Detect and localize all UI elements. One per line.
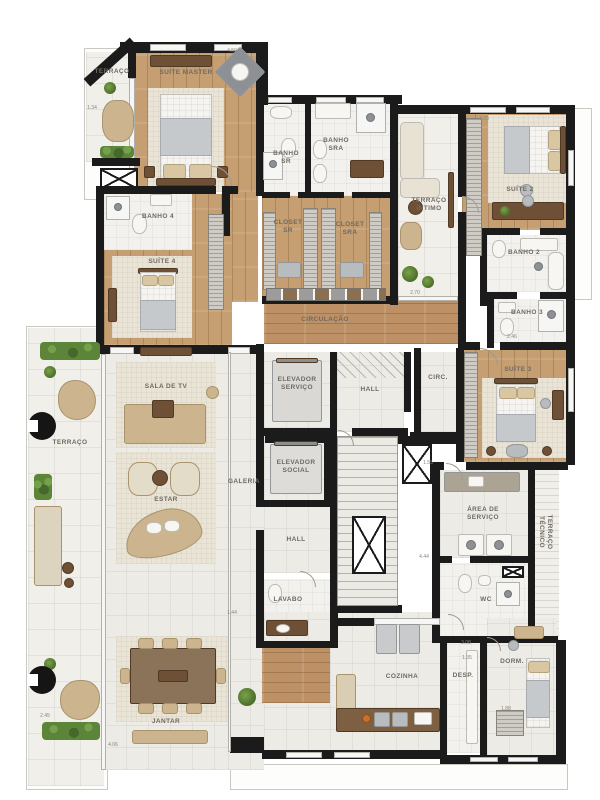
room-label-suite-4: SUÍTE 4 <box>148 258 175 266</box>
dimension-label: 4.44 <box>419 554 429 560</box>
wardrobe <box>369 212 382 290</box>
room-label-terraco-lateral: TERRAÇO <box>53 439 88 447</box>
hedge <box>42 722 100 740</box>
wall <box>324 436 331 506</box>
window <box>228 347 250 354</box>
sideboard <box>132 730 208 744</box>
social-elevator-door <box>274 441 318 446</box>
shower-head <box>534 262 543 271</box>
room-label-suite-2: SUÍTE 2 <box>506 186 533 194</box>
wall <box>230 737 264 753</box>
dimension-label: 4.06 <box>108 742 118 748</box>
wardrobe <box>466 118 482 256</box>
pouf <box>542 446 552 456</box>
wall <box>404 352 411 412</box>
room-label-banho-sr: BANHO SR <box>273 150 299 166</box>
terraco-tecnico-floor <box>535 468 559 643</box>
wall <box>96 186 104 354</box>
wall <box>487 292 494 348</box>
dimension-label: 1.55 <box>423 460 433 466</box>
bidet <box>313 164 327 183</box>
wall <box>414 348 421 436</box>
wall <box>456 348 464 462</box>
dimension-label: 1.88 <box>501 706 511 712</box>
armchair <box>400 222 422 250</box>
room-label-sala-de-tv: SALA DE TV <box>145 383 187 391</box>
bed-pillow <box>528 661 550 673</box>
wall <box>96 186 216 194</box>
shower-head <box>366 113 375 122</box>
chair <box>508 640 519 651</box>
dimension-label: 2.46 <box>507 334 517 340</box>
headboard <box>156 178 216 186</box>
armchair <box>506 444 528 458</box>
room-label-galeria: GALERIA <box>228 478 260 486</box>
wall <box>352 428 408 436</box>
toilet <box>492 240 506 258</box>
dimension-label: 2.45 <box>40 713 50 719</box>
plant-pot <box>402 266 418 282</box>
bench <box>448 172 454 228</box>
plant-pot <box>500 206 510 216</box>
wall <box>440 643 447 758</box>
room-label-suite-master: SUÍTE MASTER <box>159 69 212 77</box>
washer-door <box>466 540 476 550</box>
building-edge-bottom <box>230 764 568 790</box>
headboard <box>560 126 566 174</box>
hedge <box>34 474 52 500</box>
dining-chair <box>162 638 178 649</box>
desk-chair <box>522 195 534 207</box>
wall <box>390 100 398 305</box>
wall <box>330 610 338 648</box>
closet-bench <box>340 262 364 278</box>
room-label-jantar: JANTAR <box>152 718 180 726</box>
cooktop <box>374 712 390 727</box>
dining-chair <box>162 703 178 714</box>
armchair <box>170 462 200 496</box>
room-label-wc: WC <box>480 596 492 604</box>
duct-x <box>502 566 524 578</box>
drawer-row <box>266 288 386 301</box>
wardrobe <box>208 214 224 310</box>
wall <box>432 462 440 560</box>
pouf <box>64 578 74 588</box>
window-glass-wall <box>228 352 231 752</box>
dimension-label: 4.20 <box>479 116 489 122</box>
wall <box>256 100 264 196</box>
wall <box>264 500 330 507</box>
terrace-sofa <box>34 506 62 586</box>
room-label-banho-2: BANHO 2 <box>508 249 540 257</box>
floor-plan: TERRAÇOSUÍTE MASTERBANHO SRBANHO SRACLOS… <box>0 0 600 800</box>
room-label-cozinha: COZINHA <box>386 673 418 681</box>
plant-pot <box>238 688 256 706</box>
plant-pot <box>104 82 116 94</box>
wall <box>256 530 264 579</box>
laundry-sink <box>468 476 484 487</box>
window <box>286 752 322 758</box>
room-label-terraco-master: TERRAÇO <box>95 68 130 76</box>
dimension-label: 1.44 <box>227 610 237 616</box>
toilet <box>458 574 472 593</box>
glass-terraco-intimo <box>398 296 458 301</box>
room-label-elevador-social: ELEVADOR SOCIAL <box>277 459 316 475</box>
refrigerator <box>399 624 420 654</box>
wall <box>330 436 337 610</box>
window <box>470 757 498 762</box>
room-label-terraco-intimo: TERRAÇO ÍNTIMO <box>412 197 447 213</box>
window <box>268 97 292 103</box>
lounge-chair <box>58 380 96 420</box>
sink <box>478 575 491 586</box>
bed-pillow <box>142 275 158 286</box>
shower-head <box>114 203 122 211</box>
wall <box>92 158 140 166</box>
wall <box>458 112 466 197</box>
room-label-terraco-tecnico: TERRAÇO TÉCNICO <box>537 515 553 550</box>
wall <box>466 462 568 470</box>
wall <box>458 212 466 304</box>
shelving <box>466 650 478 744</box>
wall <box>398 436 464 444</box>
wall <box>540 228 566 235</box>
room-label-banho-4: BANHO 4 <box>142 213 174 221</box>
bathtub <box>548 252 564 290</box>
dimension-label: 3.08 <box>461 640 471 646</box>
room-label-banho-sra: BANHO SRA <box>323 137 349 153</box>
kitchen-sink <box>414 712 432 725</box>
double-sink-counter <box>315 103 351 119</box>
wall <box>298 192 344 198</box>
sofa-cushion <box>164 520 180 532</box>
cooktop <box>392 712 408 727</box>
sofa-cushion <box>146 522 162 534</box>
dining-chair <box>186 638 202 649</box>
bed-blanket <box>140 300 176 330</box>
sink <box>270 106 292 119</box>
wall <box>352 192 390 198</box>
wardrobe <box>321 208 336 294</box>
room-label-suite-3: SUÍTE 3 <box>504 366 531 374</box>
room-label-hall-inferior: HALL <box>287 536 306 544</box>
wardrobe <box>464 352 478 458</box>
desk <box>514 626 544 639</box>
wall <box>500 342 566 350</box>
circ-floor <box>421 352 456 432</box>
sink <box>276 624 290 633</box>
hedge <box>100 146 134 158</box>
wall <box>480 643 487 758</box>
dresser <box>150 55 212 67</box>
refrigerator <box>376 624 397 654</box>
desk-chair <box>540 398 551 409</box>
pouf <box>486 446 496 456</box>
bed-blanket <box>504 126 530 174</box>
wall <box>432 563 440 643</box>
louver-closet <box>496 710 524 736</box>
wall-fountain-notch <box>28 420 38 432</box>
tv-console <box>140 347 192 356</box>
bath-bench <box>350 160 384 178</box>
tv-cabinet <box>108 288 117 322</box>
wall <box>334 618 374 626</box>
room-label-circulacao: CIRCULAÇÃO <box>301 316 349 324</box>
room-label-hall-superior: HALL <box>361 386 380 394</box>
door-arc <box>300 571 316 587</box>
wall <box>330 605 402 613</box>
room-label-area-de-servico: ÁREA DE SERVIÇO <box>467 506 499 522</box>
window <box>516 107 550 113</box>
dining-chair <box>186 703 202 714</box>
bed-pillow <box>163 164 186 179</box>
shower-head <box>504 590 512 598</box>
wall <box>540 292 566 299</box>
circulacao-floor <box>264 300 464 344</box>
wall <box>432 556 452 563</box>
closet-bench <box>277 262 301 278</box>
wall <box>440 755 566 764</box>
sofa-chaise <box>400 178 440 198</box>
window <box>150 44 186 51</box>
bed-pillow <box>158 275 174 286</box>
lounge-chair <box>102 100 134 142</box>
dryer-door <box>494 540 504 550</box>
coffee-table-round <box>152 470 168 486</box>
wall <box>330 352 337 430</box>
window <box>568 368 574 412</box>
bed-blanket <box>496 414 536 442</box>
dimension-label: 1.35 <box>462 655 472 661</box>
room-label-estar: ESTAR <box>154 496 178 504</box>
bed-pillow <box>189 164 212 179</box>
hall-glass-partition <box>337 352 404 378</box>
room-label-lavabo: LAVABO <box>274 596 303 604</box>
room-label-elevador-servico: ELEVADOR SERVIÇO <box>278 376 317 392</box>
window <box>508 757 538 762</box>
master-hall-floor <box>232 192 258 302</box>
plant-pot <box>44 366 56 378</box>
window-glass-wall <box>101 354 106 770</box>
pot <box>362 714 371 723</box>
bed-blanket <box>160 118 212 156</box>
sofa <box>400 122 424 180</box>
sofa-tray <box>152 400 174 418</box>
stair-void-x <box>352 516 386 574</box>
room-label-dormitorio: DORM. <box>500 658 524 666</box>
dimension-label: 1.34 <box>87 105 97 111</box>
wall <box>256 573 264 648</box>
window <box>470 107 506 113</box>
wall <box>305 100 311 192</box>
bed-blanket <box>526 680 550 718</box>
room-label-closet-sra: CLOSET SRA <box>336 221 365 237</box>
sink <box>150 194 172 206</box>
window <box>568 150 574 186</box>
room-label-despensa: DESP. <box>453 672 474 680</box>
shower-head <box>547 310 556 319</box>
room-label-closet-sr: CLOSET SR <box>274 219 303 235</box>
service-elevator-door <box>276 358 318 363</box>
building-edge-right <box>572 108 592 300</box>
plant-pot <box>422 276 434 288</box>
room-label-circ: CIRC. <box>428 374 448 382</box>
dining-chair <box>216 668 226 684</box>
table-setting <box>158 670 188 682</box>
dining-chair <box>138 703 154 714</box>
kitchen-access-floor <box>262 645 330 703</box>
door-arc <box>446 463 463 480</box>
dining-chair <box>138 638 154 649</box>
side-table <box>206 386 219 399</box>
nightstand <box>144 166 155 178</box>
room-label-banho-3: BANHO 3 <box>511 309 543 317</box>
wall <box>260 641 332 648</box>
dining-chair <box>120 668 130 684</box>
dimension-label: 4.50 <box>227 48 237 54</box>
bed-pillow <box>499 387 517 399</box>
wall <box>262 192 290 198</box>
dimension-label: 2.70 <box>410 290 420 296</box>
bathtub-round <box>231 63 249 81</box>
window <box>110 347 134 354</box>
desk <box>552 390 564 420</box>
window <box>334 752 370 758</box>
hedge <box>40 342 100 360</box>
wall <box>470 556 530 563</box>
pouf <box>62 562 74 574</box>
bed-pillow <box>517 387 535 399</box>
wall-fountain-notch <box>28 674 38 686</box>
wall <box>262 428 337 436</box>
wardrobe <box>303 208 318 294</box>
wall <box>556 640 566 762</box>
